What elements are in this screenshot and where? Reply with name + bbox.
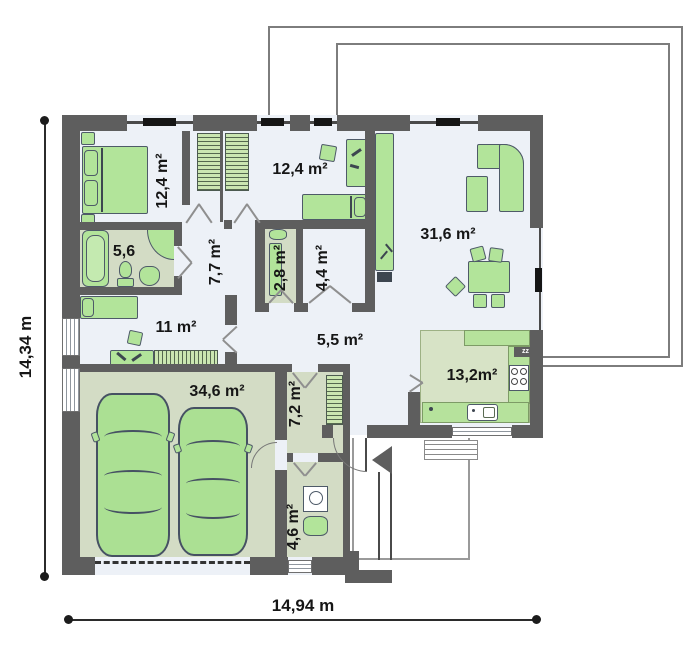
porch-line bbox=[390, 472, 392, 560]
chair bbox=[488, 247, 504, 263]
sliding-door-handle bbox=[535, 268, 542, 292]
stove-burner bbox=[520, 378, 527, 385]
window bbox=[62, 318, 80, 356]
dimension-dot bbox=[40, 572, 49, 581]
wall bbox=[80, 222, 182, 230]
wall bbox=[220, 131, 223, 222]
sink bbox=[139, 266, 160, 286]
wall bbox=[260, 220, 373, 229]
window-lintel bbox=[314, 118, 332, 126]
dimension-line-horizontal bbox=[68, 619, 537, 621]
desk bbox=[346, 139, 367, 187]
wall bbox=[294, 303, 308, 312]
wall bbox=[287, 453, 293, 462]
washbasin bbox=[269, 229, 287, 240]
garage-door bbox=[95, 561, 250, 564]
wall bbox=[255, 303, 269, 312]
wall bbox=[62, 412, 80, 575]
wall bbox=[352, 303, 375, 312]
wall bbox=[62, 115, 80, 318]
wall bbox=[62, 356, 80, 368]
room-label-wc: 2,8 m² bbox=[272, 245, 290, 291]
coffee-table bbox=[466, 176, 488, 212]
room-label-corridor: 5,5 m² bbox=[317, 332, 363, 350]
window-lintel bbox=[436, 118, 460, 126]
room-label-kitchen: 13,2m² bbox=[447, 367, 498, 385]
wall bbox=[193, 115, 257, 131]
wardrobe bbox=[197, 133, 221, 191]
entrance-steps bbox=[424, 440, 478, 460]
pillow bbox=[84, 180, 98, 206]
car-rear-window bbox=[104, 500, 162, 514]
chair bbox=[473, 294, 487, 308]
wall bbox=[365, 220, 375, 312]
window-lintel bbox=[143, 118, 176, 126]
wall bbox=[312, 557, 345, 575]
car-roof-line bbox=[104, 470, 162, 482]
dimension-label-height: 14,34 m bbox=[16, 316, 36, 378]
window bbox=[452, 427, 512, 436]
car-windshield bbox=[104, 430, 162, 444]
wall bbox=[337, 115, 410, 131]
tv bbox=[377, 272, 392, 282]
room-label-utility: 7,2 m² bbox=[287, 381, 305, 427]
window bbox=[62, 368, 80, 412]
room-label-bedroom-2: 12,4 m² bbox=[272, 161, 327, 179]
front-door-leaf bbox=[365, 438, 367, 471]
porch-line bbox=[378, 472, 380, 560]
stool bbox=[127, 330, 144, 347]
wall bbox=[318, 364, 350, 372]
wall bbox=[512, 425, 543, 438]
stove-burner bbox=[520, 368, 527, 375]
wall bbox=[80, 287, 182, 295]
wardrobe bbox=[326, 375, 343, 425]
kitchen-dot bbox=[429, 407, 433, 411]
sofa bbox=[499, 144, 524, 212]
kitchen-sink-basin bbox=[483, 407, 495, 418]
pillow bbox=[82, 298, 94, 317]
stove-burner bbox=[511, 368, 518, 375]
toilet-bowl bbox=[119, 261, 132, 278]
dimension-dot bbox=[64, 615, 73, 624]
dining-table bbox=[468, 261, 510, 293]
wall bbox=[365, 131, 375, 222]
dimension-dot bbox=[40, 116, 49, 125]
laundry-sink bbox=[303, 516, 328, 536]
washer-drum bbox=[309, 491, 323, 505]
room-label-bathroom: 5,6 bbox=[113, 243, 135, 261]
bathtub-inner bbox=[86, 235, 105, 282]
dimension-dot bbox=[532, 615, 541, 624]
wall bbox=[174, 222, 182, 246]
wall bbox=[530, 330, 543, 435]
kitchen-tap bbox=[472, 409, 475, 412]
wall bbox=[182, 131, 190, 205]
wall bbox=[224, 220, 232, 229]
nightstand bbox=[81, 132, 95, 145]
toilet-tank bbox=[117, 278, 134, 287]
bed-headboard-line bbox=[350, 196, 352, 218]
room-label-hallway: 7,7 m² bbox=[207, 239, 225, 285]
wall bbox=[408, 392, 420, 427]
car-roof-line bbox=[186, 478, 240, 489]
car-rear-window bbox=[186, 506, 240, 519]
kitchen-counter-top bbox=[464, 330, 530, 346]
wall bbox=[345, 570, 392, 583]
stove-burner bbox=[511, 378, 518, 385]
pillow bbox=[84, 150, 98, 176]
wall bbox=[62, 557, 95, 575]
wall bbox=[275, 372, 287, 440]
wall bbox=[287, 364, 292, 372]
room-label-bedroom-1: 12,4 m² bbox=[154, 153, 172, 208]
wall bbox=[290, 115, 310, 131]
kitchen-vent-badge: zz bbox=[514, 347, 530, 357]
wardrobe bbox=[225, 133, 249, 191]
wall bbox=[250, 557, 288, 575]
entrance-arrow-icon bbox=[372, 446, 392, 474]
car-windshield bbox=[186, 440, 240, 453]
chair bbox=[491, 294, 505, 308]
window bbox=[288, 560, 312, 573]
room-label-pantry: 4,4 m² bbox=[314, 245, 332, 291]
wall bbox=[322, 425, 333, 438]
desk-chair bbox=[319, 144, 338, 163]
window-lintel bbox=[261, 118, 284, 126]
room-label-garage: 34,6 m² bbox=[189, 383, 244, 401]
wall bbox=[80, 364, 287, 372]
dimension-line-vertical bbox=[44, 120, 46, 577]
floor-plan: zz bbox=[0, 0, 700, 667]
room-label-bedroom-3: 11 m² bbox=[156, 319, 197, 337]
wall bbox=[225, 295, 237, 325]
room-label-laundry: 4,6 m² bbox=[285, 504, 303, 550]
dimension-label-width: 14,94 m bbox=[272, 596, 334, 616]
wall bbox=[530, 115, 543, 228]
wall bbox=[296, 220, 303, 312]
wall bbox=[255, 220, 265, 312]
bed-headboard-line bbox=[101, 148, 103, 212]
room-label-living-room: 31,6 m² bbox=[420, 226, 475, 244]
